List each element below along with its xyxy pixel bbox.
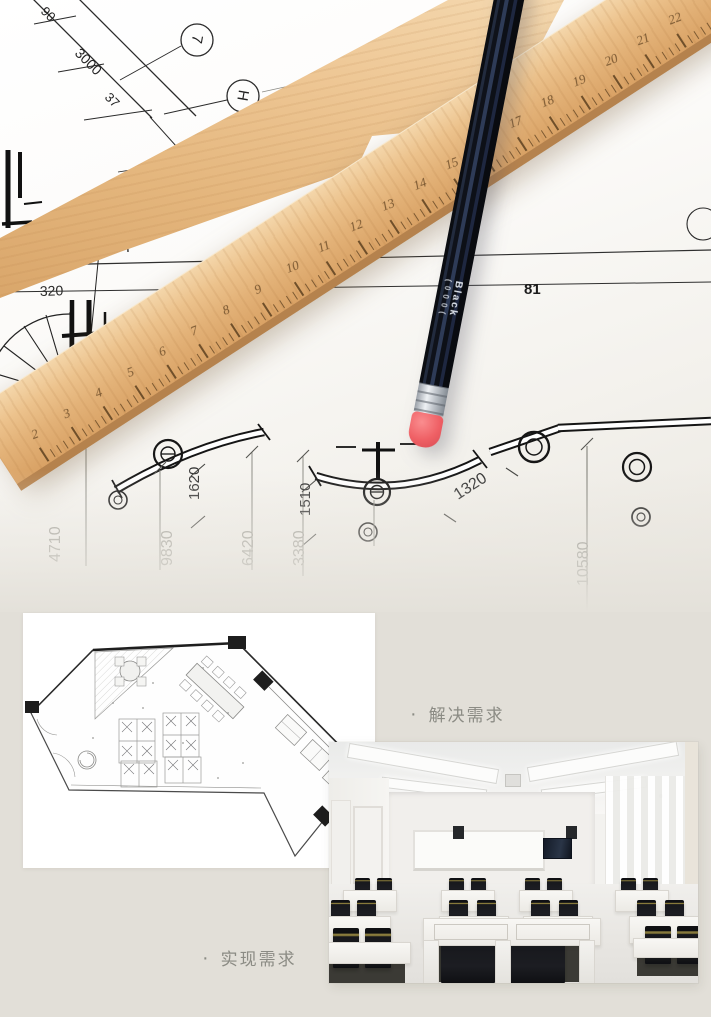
marker-h: H	[233, 89, 252, 103]
wall-tv	[543, 838, 572, 859]
dim-1510: 1510	[297, 483, 314, 516]
wall-dim-labels: 1620 1510 1320	[186, 464, 518, 546]
floor-plan-card	[23, 613, 375, 868]
marker-7: 7	[188, 34, 206, 45]
dim-3000: 3000	[72, 45, 105, 78]
desk	[633, 938, 698, 958]
tee-symbol	[336, 442, 421, 480]
whiteboard	[413, 830, 545, 871]
pencil-brand-text: Black ( 0 0 0 (	[438, 278, 465, 318]
dim-1620: 1620	[186, 467, 203, 500]
room-door	[331, 800, 351, 888]
desk-leg	[495, 940, 511, 983]
caption-label: 实现需求	[221, 945, 297, 970]
desk-inset	[434, 924, 508, 940]
caption-label: 解决需求	[429, 701, 505, 726]
classroom-photo	[329, 742, 698, 983]
speaker	[453, 826, 464, 839]
caption-bullet: ·	[410, 704, 419, 724]
dim-9830: 9830	[159, 530, 176, 566]
desk	[329, 942, 411, 964]
dim-6420: 6420	[240, 530, 257, 566]
dim-81: 81	[524, 281, 541, 298]
dim-10580: 10580	[575, 541, 592, 586]
desk-top	[423, 918, 601, 946]
floor-plan-drawing	[23, 613, 375, 868]
desk-inset	[516, 924, 590, 940]
ruler-number: 2	[29, 426, 41, 443]
desk-leg	[423, 940, 439, 983]
blueprint-photo: 90 3000 37 7 H	[0, 0, 711, 612]
caption-bullet: ·	[202, 948, 211, 968]
dim-4710: 4710	[47, 526, 64, 562]
caption-realize: · 实现需求	[202, 945, 297, 970]
caption-solve: · 解决需求	[410, 701, 505, 726]
desk-leg	[579, 940, 595, 983]
wall-symbol	[2, 150, 42, 228]
dim-320: 320	[40, 282, 64, 299]
projector	[505, 774, 521, 787]
axis-marker-labels: 7 H	[188, 34, 252, 103]
bottom-dim-labels: 4710 9830 6420 3380 10580	[47, 526, 592, 586]
promo-banner: 90 3000 37 7 H	[0, 0, 711, 1017]
chain-labels: 90 3000 37	[38, 4, 123, 111]
dim-3380: 3380	[291, 530, 308, 566]
dim-37: 37	[102, 90, 123, 111]
